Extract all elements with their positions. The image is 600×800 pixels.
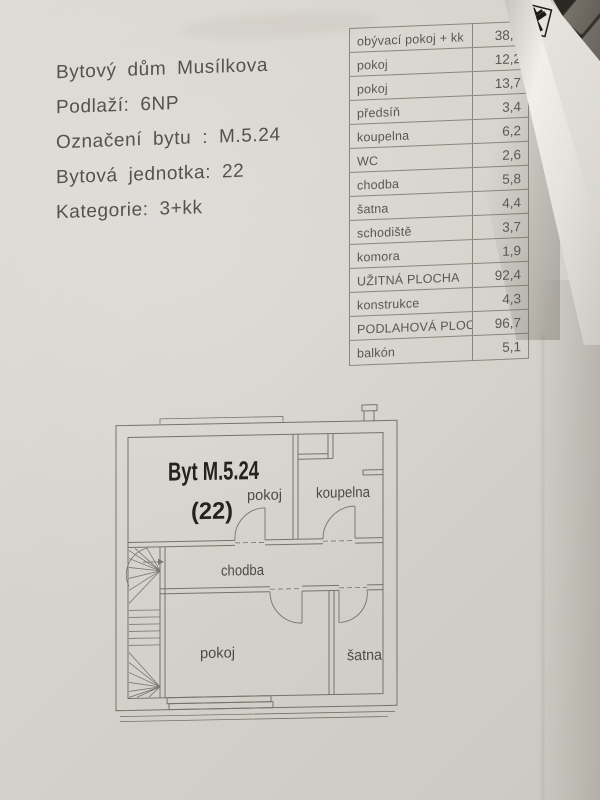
room-area-value: 12,2 <box>473 46 528 71</box>
floor-plan: Byt M.5.24 (22) pokoj koupelna chodba po… <box>105 395 407 741</box>
plan-unit-number: (22) <box>191 497 233 525</box>
floor-plan-drawing: Byt M.5.24 (22) pokoj koupelna chodba po… <box>105 395 407 741</box>
staircase <box>126 548 164 698</box>
under-sheet-edge <box>542 335 544 800</box>
staircase-wall <box>160 547 165 698</box>
flue-symbol <box>362 405 377 421</box>
room-area-value: 4,3 <box>473 286 528 311</box>
closet-label: šatna <box>347 647 383 665</box>
room-top-label: pokoj <box>247 487 282 505</box>
room-area-value: 2,6 <box>473 142 528 167</box>
bathroom-label: koupelna <box>316 484 371 502</box>
hallway-label: chodba <box>221 562 265 580</box>
wall-room-closet <box>329 591 334 695</box>
apartment-header-block: Bytový dům Musílkova Podlaží: 6NP Označe… <box>56 45 356 230</box>
room-area-value: 13,7 <box>473 70 528 95</box>
wall-room-bathroom <box>293 434 298 539</box>
room-area-value: 5,1 <box>473 334 528 360</box>
area-table: obývací pokoj + kk38,5 pokoj12,2 pokoj13… <box>349 21 529 366</box>
bathroom-ledge <box>363 470 383 475</box>
plan-title: Byt M.5.24 <box>168 455 259 487</box>
room-area-value: 92,4 <box>473 262 528 287</box>
room-area-value: 3,7 <box>473 214 528 239</box>
plan-labels: Byt M.5.24 (22) pokoj koupelna chodba po… <box>168 453 383 668</box>
bathroom-shaft <box>298 434 333 460</box>
room-area-value: 6,2 <box>473 118 528 143</box>
room-area-value: 5,8 <box>473 166 528 191</box>
room-bottom-label: pokoj <box>200 644 235 662</box>
room-area-value: 96,7 <box>473 310 528 335</box>
room-area-value: 4,4 <box>473 190 528 215</box>
room-label: balkón <box>350 336 473 365</box>
room-area-value: 38,5 <box>473 22 528 47</box>
paper-shadow <box>536 280 600 800</box>
door-arc <box>339 590 367 623</box>
door-arc <box>270 591 302 624</box>
room-area-value: 1,9 <box>473 238 528 263</box>
door-arc <box>235 508 265 541</box>
room-area-value: 3,4 <box>473 94 528 119</box>
door-arc <box>323 506 355 539</box>
